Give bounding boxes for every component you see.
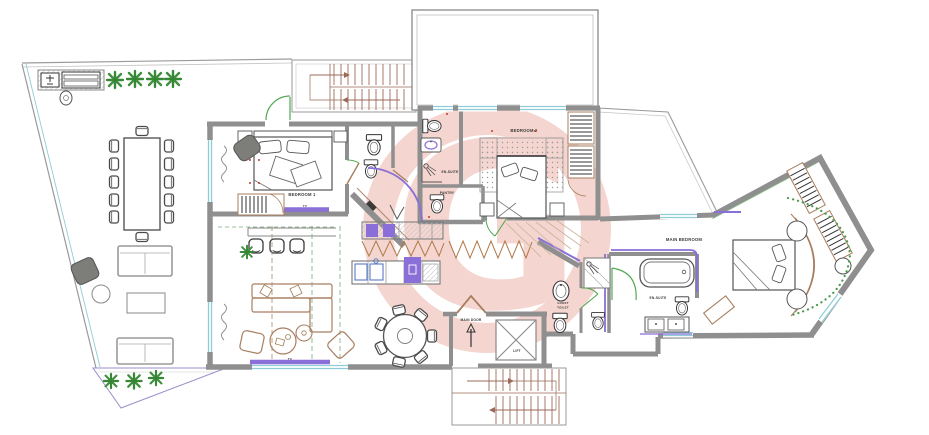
ensuite2-label: EN-SUITE xyxy=(442,170,460,174)
bar-counter xyxy=(248,228,336,236)
toilet-icon xyxy=(366,135,381,155)
main-ensuite: EN-SUITE xyxy=(640,259,694,332)
plant-icon xyxy=(149,371,163,385)
wardrobe xyxy=(814,211,852,262)
floor-plan-canvas: G xyxy=(0,0,929,435)
glass-balustrade xyxy=(26,64,100,367)
plant-icon xyxy=(241,246,254,259)
bedroom-1: BEDROOM 1 TV xyxy=(222,131,348,215)
throw-pillow xyxy=(290,285,302,297)
throw-pillow xyxy=(260,285,272,297)
bed xyxy=(733,240,795,290)
toilet-icon xyxy=(553,313,567,332)
low-table xyxy=(127,293,165,313)
coffee-table xyxy=(270,328,296,354)
appliance xyxy=(383,224,395,237)
guest-toilet-label: TOILET xyxy=(557,306,569,310)
chaise xyxy=(310,298,332,332)
side-table xyxy=(296,325,312,341)
basin xyxy=(421,138,441,152)
double-vanity xyxy=(645,317,689,332)
lift-label: LIFT xyxy=(513,349,521,353)
armchair xyxy=(239,330,265,354)
ensuite-door xyxy=(612,268,636,300)
curtain-icon xyxy=(222,304,227,340)
pillow xyxy=(287,140,310,154)
kettle xyxy=(60,91,72,105)
lift: LIFT xyxy=(496,320,536,360)
bathtub xyxy=(640,259,694,287)
toilet-icon xyxy=(430,195,444,213)
round-nightstand xyxy=(787,221,807,241)
left-terrace xyxy=(22,59,292,408)
bedroom2-label: BEDROOM 2 xyxy=(510,128,538,133)
upper-staircase xyxy=(292,60,416,112)
shower xyxy=(584,258,610,288)
door-leaf xyxy=(347,163,359,184)
terrace-plants-row xyxy=(107,71,181,88)
terrace-door xyxy=(266,96,290,120)
bench xyxy=(704,296,735,324)
outdoor-kitchen xyxy=(38,70,104,105)
bedroom1-label: BEDROOM 1 xyxy=(288,192,316,197)
main-door-label: MAIN DOOR xyxy=(460,318,481,322)
nightstand xyxy=(480,203,494,216)
wardrobe xyxy=(238,194,284,215)
headboard xyxy=(254,131,332,137)
pantry-label: PANTRY xyxy=(440,191,455,195)
toilet-icon xyxy=(675,297,689,315)
kitchen-island xyxy=(352,257,440,284)
bar-stool xyxy=(249,239,263,253)
living-tv-label: TV xyxy=(288,357,292,361)
round-side-table xyxy=(92,285,110,303)
main-ensuite-label: EN-SUITE xyxy=(650,296,668,300)
bedroom1-tv-label: TV xyxy=(303,204,307,208)
plant-icon xyxy=(104,374,118,388)
round-nightstand xyxy=(787,289,807,309)
plant-icon xyxy=(126,373,141,388)
appliance xyxy=(366,224,378,237)
main-bedroom-label: MAIN BEDROOM xyxy=(666,237,702,242)
sofa-set xyxy=(252,284,332,332)
nightstand xyxy=(550,203,564,216)
lower-staircase xyxy=(452,368,566,425)
hanging-clothes-icon xyxy=(242,196,266,213)
hanging-clothes-icon xyxy=(570,116,592,140)
bbq-grill xyxy=(62,72,100,88)
bed xyxy=(497,156,546,218)
guest-toilet-label: GUEST xyxy=(557,301,568,305)
toilet-icon xyxy=(423,119,441,133)
toilet-icon xyxy=(592,312,605,329)
nightstand xyxy=(334,131,347,142)
main-bedroom: MAIN BEDROOM xyxy=(666,163,852,325)
wardrobe xyxy=(787,163,825,214)
tall-appliance xyxy=(404,257,421,283)
bar-stool xyxy=(290,239,304,253)
pillow xyxy=(258,140,281,154)
armchair xyxy=(326,330,356,360)
floor-plan-drawing: G xyxy=(0,0,929,435)
hanging-clothes-icon xyxy=(570,150,592,174)
terrace-dining-table xyxy=(110,127,174,242)
curtain-icon xyxy=(222,146,227,182)
